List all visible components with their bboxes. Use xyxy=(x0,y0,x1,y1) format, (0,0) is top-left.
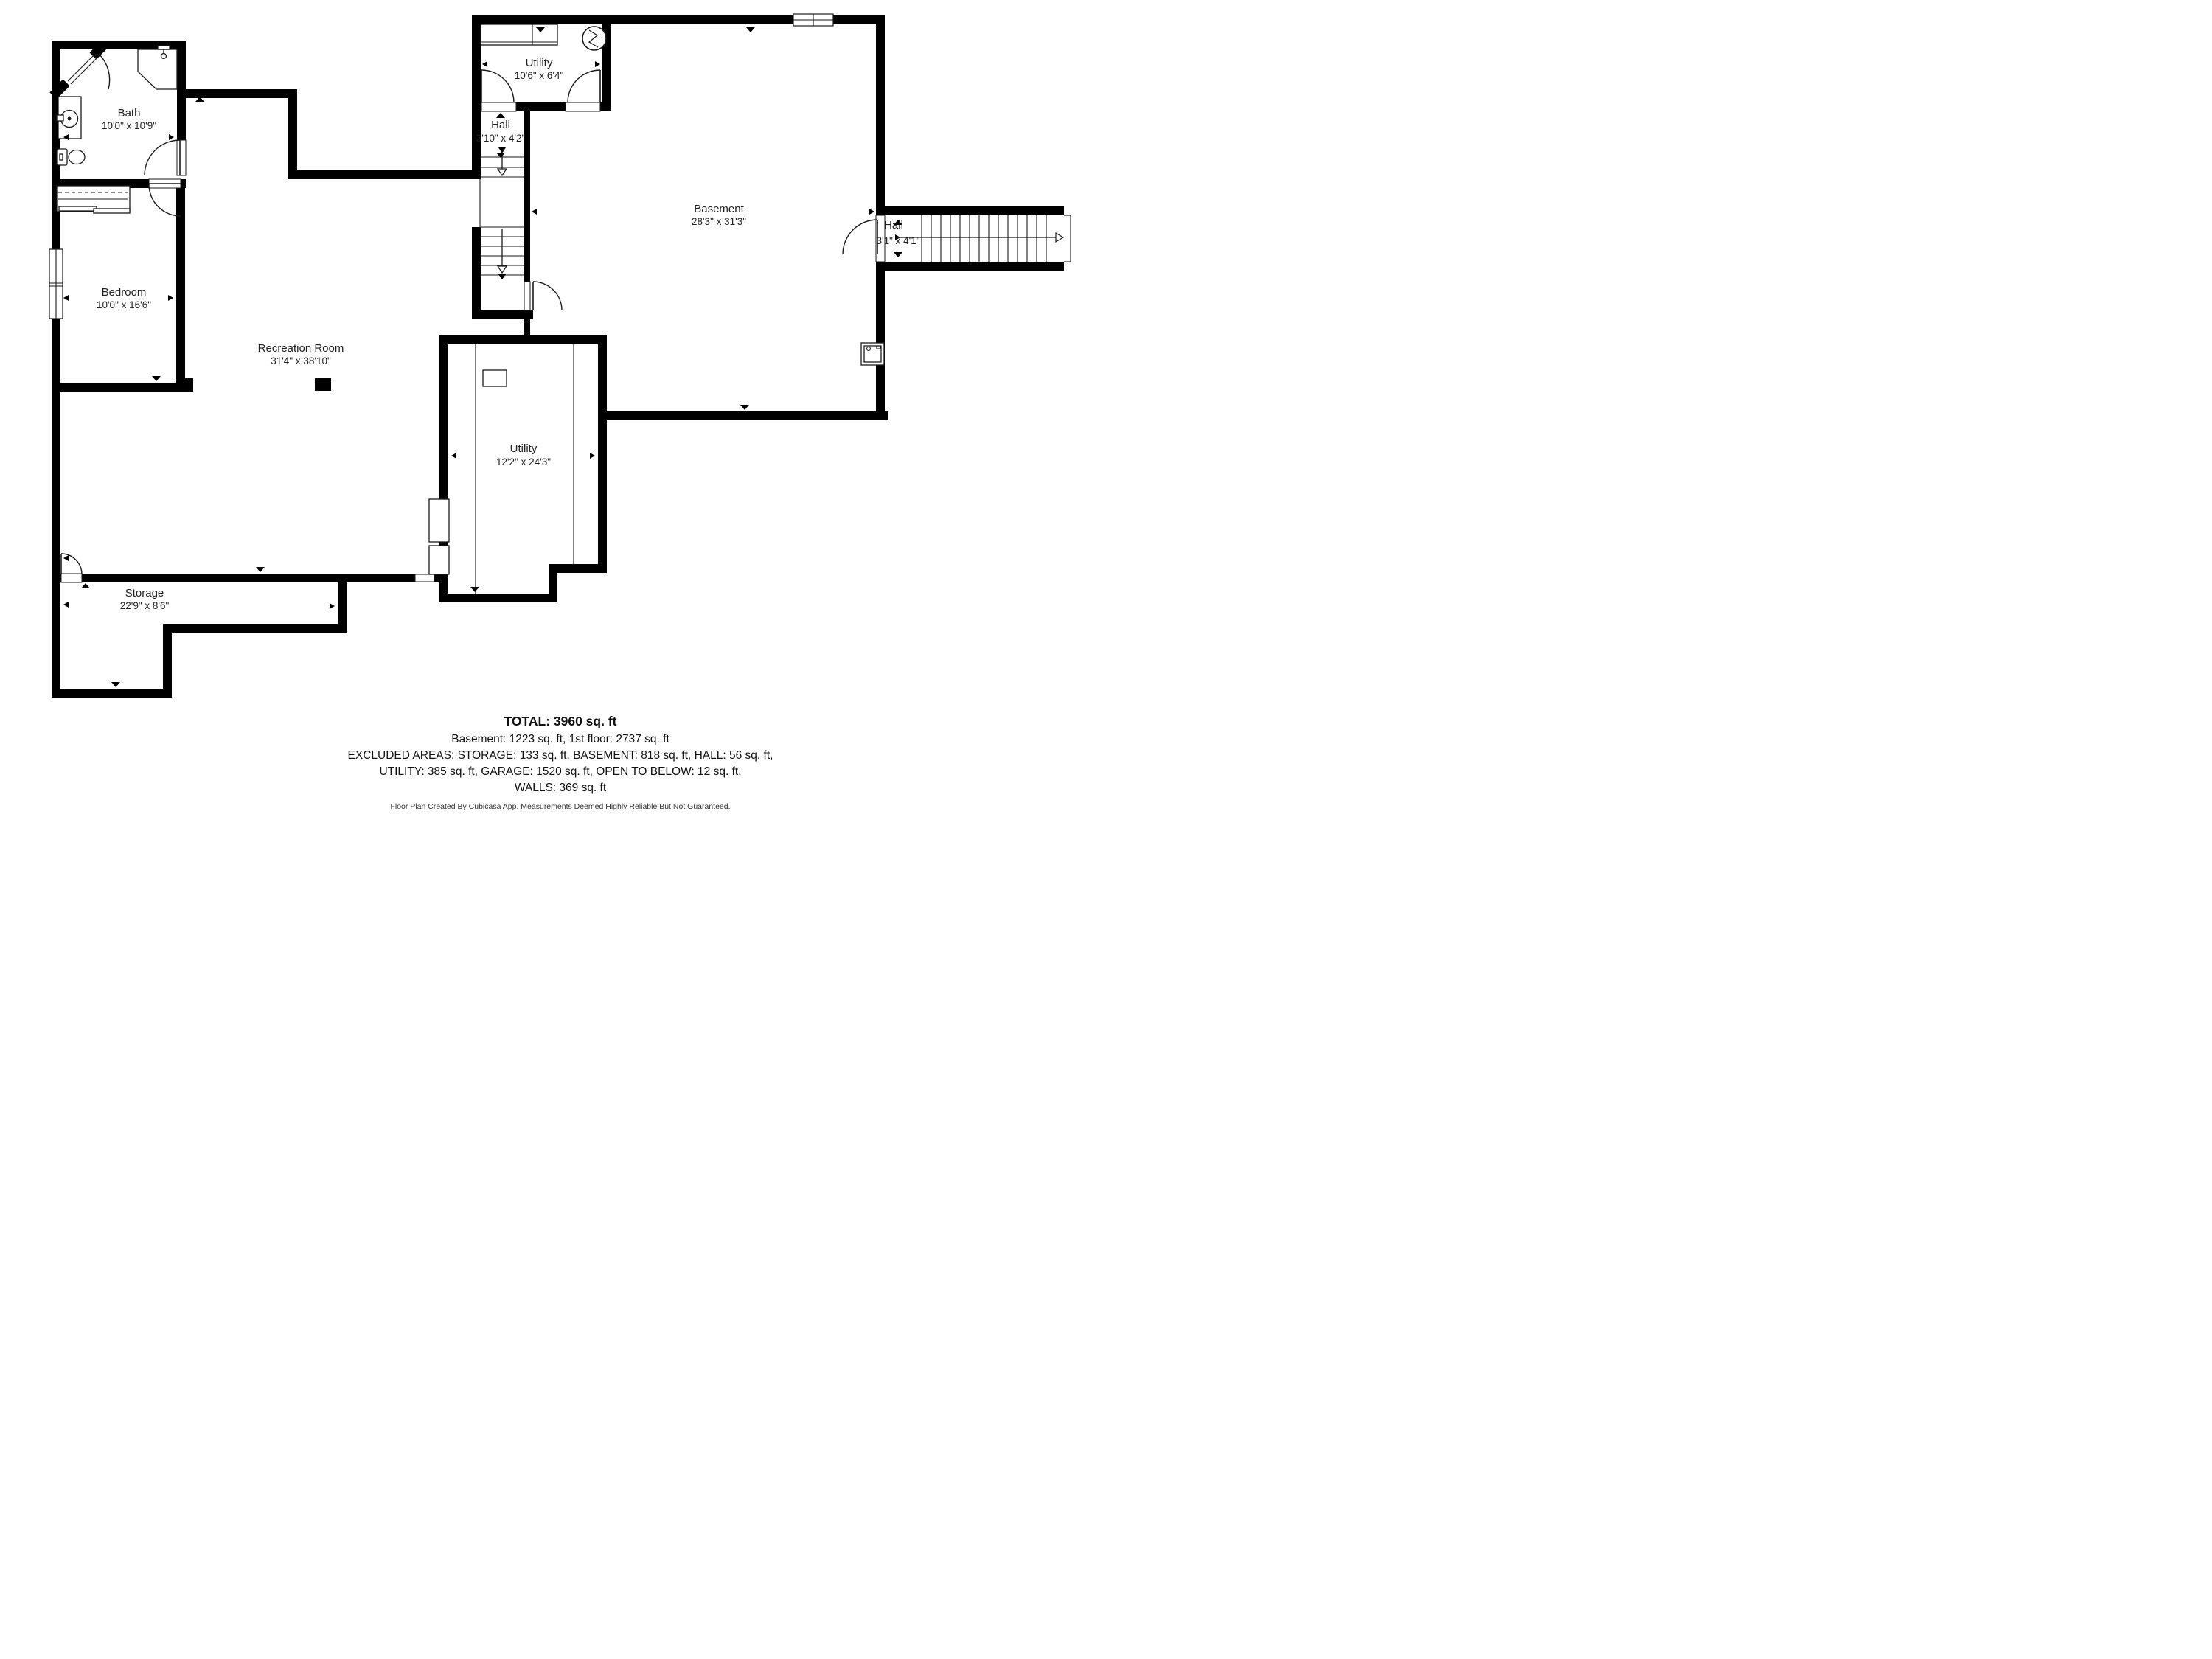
room-label-bedroom: Bedroom xyxy=(102,286,147,299)
room-dims-bath: 10'0" x 10'9" xyxy=(102,120,156,131)
sink-icon xyxy=(57,97,81,139)
water-heater-icon xyxy=(582,27,606,50)
bath-door-gap xyxy=(177,140,186,175)
room-label-recreation: Recreation Room xyxy=(258,342,344,355)
room-dims-utility-top: 10'6" x 6'4" xyxy=(515,70,564,81)
storage-door-gap xyxy=(61,574,82,582)
room-label-utility-mid: Utility xyxy=(510,442,538,455)
bedroom-window-icon xyxy=(49,249,63,319)
room-label-hall-right: Hall xyxy=(884,219,903,232)
room-label-storage: Storage xyxy=(125,587,164,599)
room-label-utility-top: Utility xyxy=(526,57,553,69)
summary-total: TOTAL: 3960 sq. ft xyxy=(504,714,617,728)
room-dims-hall-top: 3'10" x 4'2" xyxy=(476,133,526,144)
summary-line4: WALLS: 369 sq. ft xyxy=(515,782,607,794)
summary-line1: Basement: 1223 sq. ft, 1st floor: 2737 s… xyxy=(451,733,669,745)
counter-icon xyxy=(481,24,557,45)
floorplan-svg: Bath 10'0" x 10'9" Utility 10'6" x 6'4" … xyxy=(0,0,1106,829)
utility-side-cabinets-icon xyxy=(429,499,449,574)
room-dims-basement: 28'3" x 31'3" xyxy=(692,216,746,227)
laundry-sink-icon xyxy=(861,343,884,365)
column xyxy=(315,378,331,391)
room-dims-utility-mid: 12'2" x 24'3" xyxy=(496,456,551,467)
closet-icon xyxy=(57,186,130,213)
summary-line3: UTILITY: 385 sq. ft, GARAGE: 1520 sq. ft… xyxy=(379,765,741,778)
room-dims-storage: 22'9" x 8'6" xyxy=(120,600,170,611)
room-label-basement: Basement xyxy=(694,203,744,215)
room-dims-bedroom: 10'0" x 16'6" xyxy=(97,299,151,310)
canvas-background xyxy=(0,0,1106,829)
stair-bottom-door-gap xyxy=(524,282,530,310)
room-dims-hall-right: 3'1" x 4'1" xyxy=(876,235,919,246)
room-label-hall-top: Hall xyxy=(491,119,510,131)
utility-top-right-door-gap xyxy=(566,102,600,111)
basement-window-icon xyxy=(793,14,833,26)
floorplan-page: Bath 10'0" x 10'9" Utility 10'6" x 6'4" … xyxy=(0,0,1106,829)
summary-line2: EXCLUDED AREAS: STORAGE: 133 sq. ft, BAS… xyxy=(348,749,773,762)
summary-disclaimer: Floor Plan Created By Cubicasa App. Meas… xyxy=(390,802,730,811)
room-label-bath: Bath xyxy=(118,107,141,119)
rec-storage-pass xyxy=(415,574,434,582)
utility-top-left-door-gap xyxy=(481,102,516,111)
room-dims-recreation: 31'4" x 38'10" xyxy=(271,355,331,366)
